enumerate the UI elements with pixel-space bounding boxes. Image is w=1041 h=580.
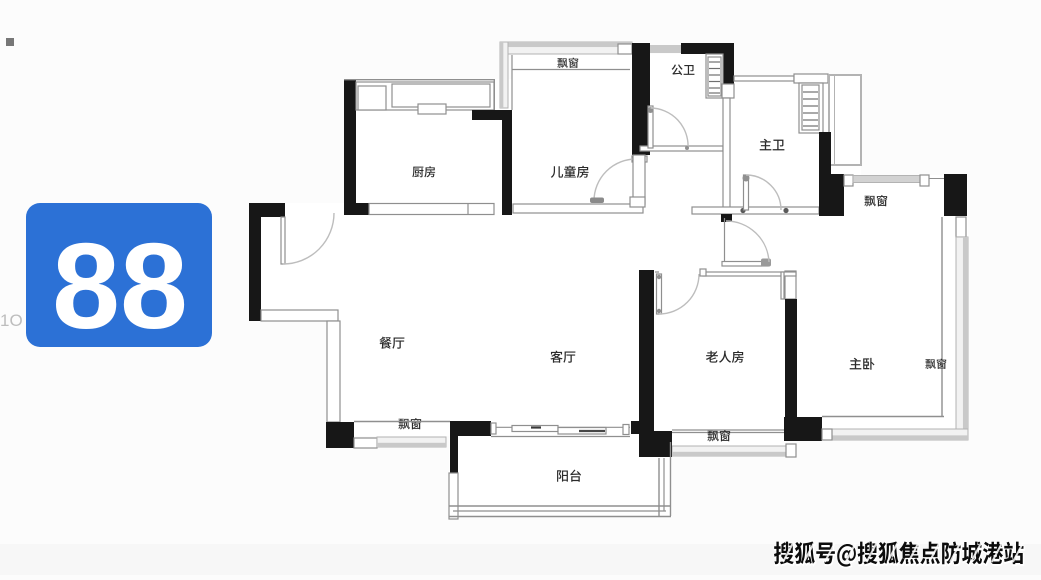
svg-text:1O: 1O	[0, 311, 23, 330]
svg-text:88: 88	[52, 218, 188, 354]
